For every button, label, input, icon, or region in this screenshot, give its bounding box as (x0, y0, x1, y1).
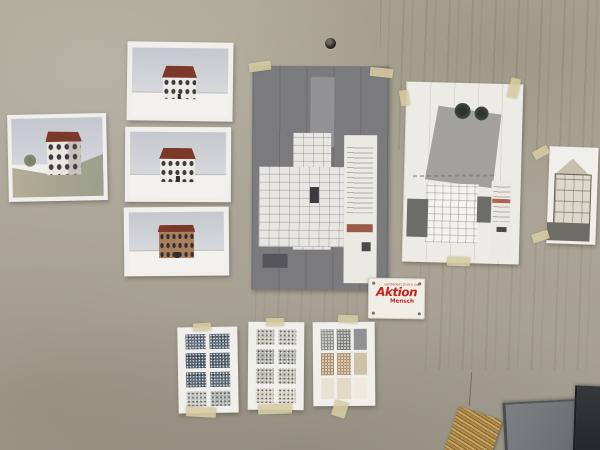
material-swatch (354, 353, 368, 374)
masking-tape (258, 403, 292, 414)
wall-crack (469, 372, 472, 406)
terrazzo-sample-sheet-light (248, 322, 305, 410)
elevation3-building (157, 225, 195, 258)
material-swatch (321, 353, 335, 374)
swatch-grid-2 (248, 322, 305, 410)
plan-legend-block (262, 254, 287, 268)
material-swatch (337, 353, 351, 374)
screw-icon (372, 312, 375, 315)
terrazzo-sample-sheet-dark (177, 326, 238, 413)
elevation-sheet-1 (126, 41, 233, 121)
plaque-caption: GEFÖRDERT DURCH DIE (384, 284, 409, 286)
plan-footprint-main (258, 166, 343, 247)
site-plan-sheet (402, 81, 524, 264)
masking-tape (532, 145, 550, 160)
screw-icon (418, 312, 421, 315)
masking-tape (338, 315, 358, 324)
material-swatch (209, 334, 229, 349)
building-roof (45, 131, 82, 142)
material-swatch (256, 329, 274, 345)
elevation3-door (175, 252, 179, 258)
masking-tape (193, 323, 211, 332)
photo-concrete-wall: GEFÖRDERT DURCH DIE Aktion Mensch (0, 0, 600, 450)
material-swatch (321, 329, 335, 350)
aktion-mensch-plaque: GEFÖRDERT DURCH DIE Aktion Mensch (368, 278, 426, 320)
plan-title-block (343, 136, 377, 284)
elevation1-door (177, 94, 181, 99)
material-swatch (278, 329, 296, 345)
wooden-slat-panel (442, 406, 503, 450)
elevation1-building (162, 65, 197, 99)
section-ground (546, 222, 590, 242)
masking-tape (266, 318, 284, 326)
formwork-tie-hole (325, 38, 336, 49)
material-swatch (353, 329, 367, 350)
swatch-grid-1 (177, 326, 238, 413)
section-sheet (546, 146, 598, 245)
material-swatch (185, 334, 205, 349)
elevation2-door (176, 176, 180, 182)
material-swatch (256, 368, 274, 384)
floor-plan-poster (251, 66, 389, 291)
plaque-brand-aktion: Aktion (369, 287, 424, 299)
plaque-brand-mensch: Mensch (374, 298, 418, 303)
material-swatch (256, 387, 274, 403)
plan-title-stamp (361, 242, 370, 251)
section-floors (553, 174, 592, 226)
masking-tape (447, 257, 470, 267)
material-swatch (210, 391, 230, 406)
site-title-highlight (493, 198, 511, 203)
rendering-sheet (7, 113, 108, 202)
material-swatch (337, 329, 351, 350)
masking-tape (186, 406, 216, 418)
material-swatch (354, 377, 368, 398)
elevation1-roof (162, 65, 197, 77)
material-swatch (210, 353, 230, 368)
material-swatch (278, 368, 296, 384)
plan-stair-core (309, 187, 319, 203)
material-swatch (278, 349, 296, 365)
elevation2-roof (159, 148, 196, 160)
elevation2-building (159, 148, 196, 182)
material-swatch (186, 372, 206, 387)
dark-board (573, 385, 600, 450)
site-title-stamp (497, 227, 507, 232)
material-swatch (337, 378, 351, 399)
material-swatch (186, 353, 206, 368)
rendered-building (45, 131, 83, 175)
swatch-grid-3 (313, 322, 376, 407)
material-swatch (210, 372, 230, 387)
material-swatch (321, 378, 335, 399)
screw-icon (372, 282, 375, 285)
site-title-block (489, 181, 512, 261)
elevation-sheet-2 (125, 127, 231, 203)
material-swatch (186, 391, 206, 406)
material-swatch (278, 388, 296, 404)
rendering-bush (24, 154, 36, 166)
plan-title-highlight (347, 224, 373, 232)
site-building-plan (426, 183, 479, 244)
fabric-sample-sheet (313, 322, 376, 407)
site-wing-left (406, 199, 428, 237)
elevation-sheet-3 (124, 207, 230, 277)
material-swatch (256, 348, 274, 364)
masking-tape (331, 399, 349, 419)
building-side-shade (68, 141, 81, 174)
